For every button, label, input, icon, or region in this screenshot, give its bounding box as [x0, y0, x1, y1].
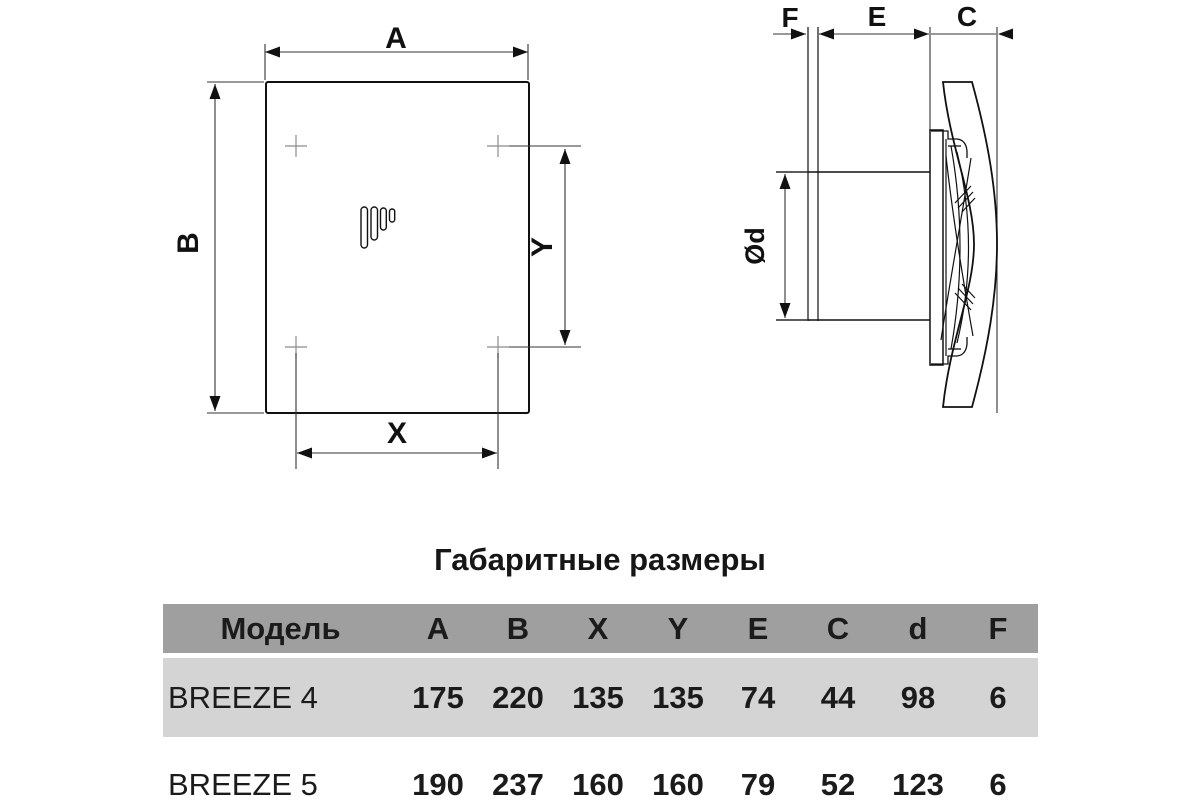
- value-y: 160: [638, 767, 718, 800]
- table-title: Габаритные размеры: [0, 542, 1200, 578]
- column-header-y: Y: [638, 611, 718, 647]
- value-e: 74: [718, 680, 798, 716]
- dimensions-table: Модель A B X Y E C d F BREEZE 4 175 220 …: [163, 604, 1038, 800]
- dimension-label-diameter: Ød: [740, 227, 770, 265]
- dimension-label-c: C: [957, 1, 977, 32]
- dimension-label-x: X: [387, 417, 407, 450]
- table-row-breeze-4: BREEZE 4 175 220 135 135 74 44 98 6: [163, 658, 1038, 737]
- value-c: 44: [798, 680, 878, 716]
- grille-and-blades: [941, 139, 975, 356]
- front-view-drawing: A B X Y: [172, 22, 581, 469]
- duct-outline: [776, 172, 930, 320]
- value-a: 190: [398, 767, 478, 800]
- column-header-d: d: [878, 611, 958, 647]
- value-b: 237: [478, 767, 558, 800]
- side-dimension-arrows: [780, 29, 1014, 319]
- value-f: 6: [958, 767, 1038, 800]
- value-x: 135: [558, 680, 638, 716]
- duct-flange-outline: [808, 27, 818, 321]
- column-header-c: C: [798, 611, 878, 647]
- model-name: BREEZE 5: [163, 767, 398, 800]
- table-row-breeze-5: BREEZE 5 190 237 160 160 79 52 123 6: [163, 745, 1038, 800]
- value-d: 123: [878, 767, 958, 800]
- value-a: 175: [398, 680, 478, 716]
- model-name: BREEZE 4: [163, 680, 398, 716]
- column-header-a: A: [398, 611, 478, 647]
- front-panel-outline: [266, 82, 529, 413]
- value-b: 220: [478, 680, 558, 716]
- dimension-label-e: E: [868, 1, 887, 32]
- front-cover-profile: [943, 82, 997, 407]
- technical-drawing: A B X Y: [0, 0, 1200, 535]
- dimension-label-y: Y: [526, 237, 559, 257]
- column-header-model: Модель: [163, 611, 398, 647]
- value-c: 52: [798, 767, 878, 800]
- table-header-row: Модель A B X Y E C d F: [163, 604, 1038, 653]
- column-header-b: B: [478, 611, 558, 647]
- fan-dimensions-sheet: A B X Y: [0, 0, 1200, 800]
- value-f: 6: [958, 680, 1038, 716]
- side-view-drawing: F E C Ød: [740, 1, 1013, 413]
- dimension-label-a: A: [385, 22, 407, 55]
- dimension-label-b: B: [172, 232, 205, 254]
- mounting-plate-outline: [930, 130, 943, 365]
- value-d: 98: [878, 680, 958, 716]
- column-header-f: F: [958, 611, 1038, 647]
- value-y: 135: [638, 680, 718, 716]
- value-x: 160: [558, 767, 638, 800]
- column-header-e: E: [718, 611, 798, 647]
- value-e: 79: [718, 767, 798, 800]
- column-header-x: X: [558, 611, 638, 647]
- dimension-label-f: F: [781, 2, 798, 33]
